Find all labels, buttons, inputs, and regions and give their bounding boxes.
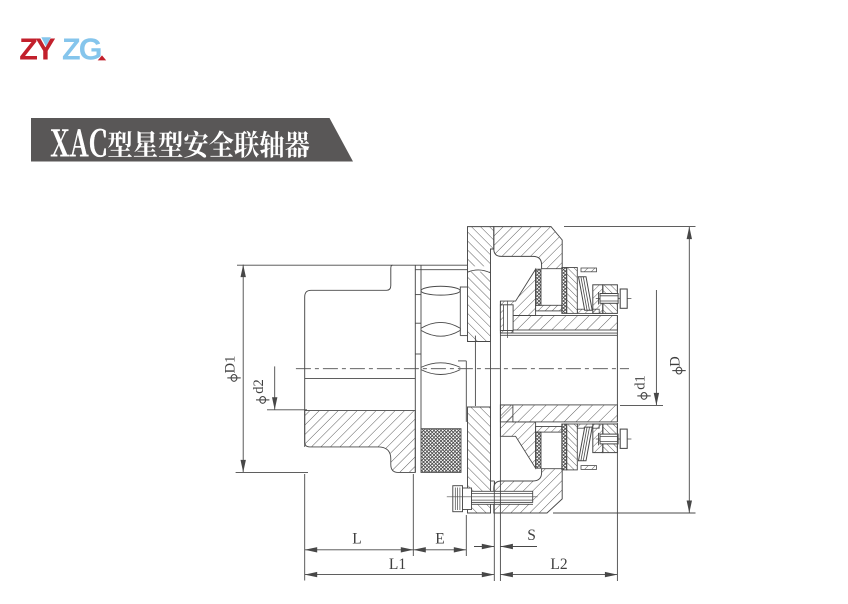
svg-text:L: L	[352, 531, 361, 548]
svg-text:d2: d2	[251, 379, 267, 394]
svg-text:E: E	[435, 531, 444, 548]
svg-text:D1: D1	[223, 356, 239, 374]
svg-text:L1: L1	[389, 556, 406, 573]
svg-text:L2: L2	[550, 556, 567, 573]
svg-text:G: G	[79, 33, 103, 67]
svg-text:d1: d1	[633, 375, 649, 390]
svg-text:S: S	[527, 527, 536, 544]
svg-text:D: D	[668, 356, 684, 366]
